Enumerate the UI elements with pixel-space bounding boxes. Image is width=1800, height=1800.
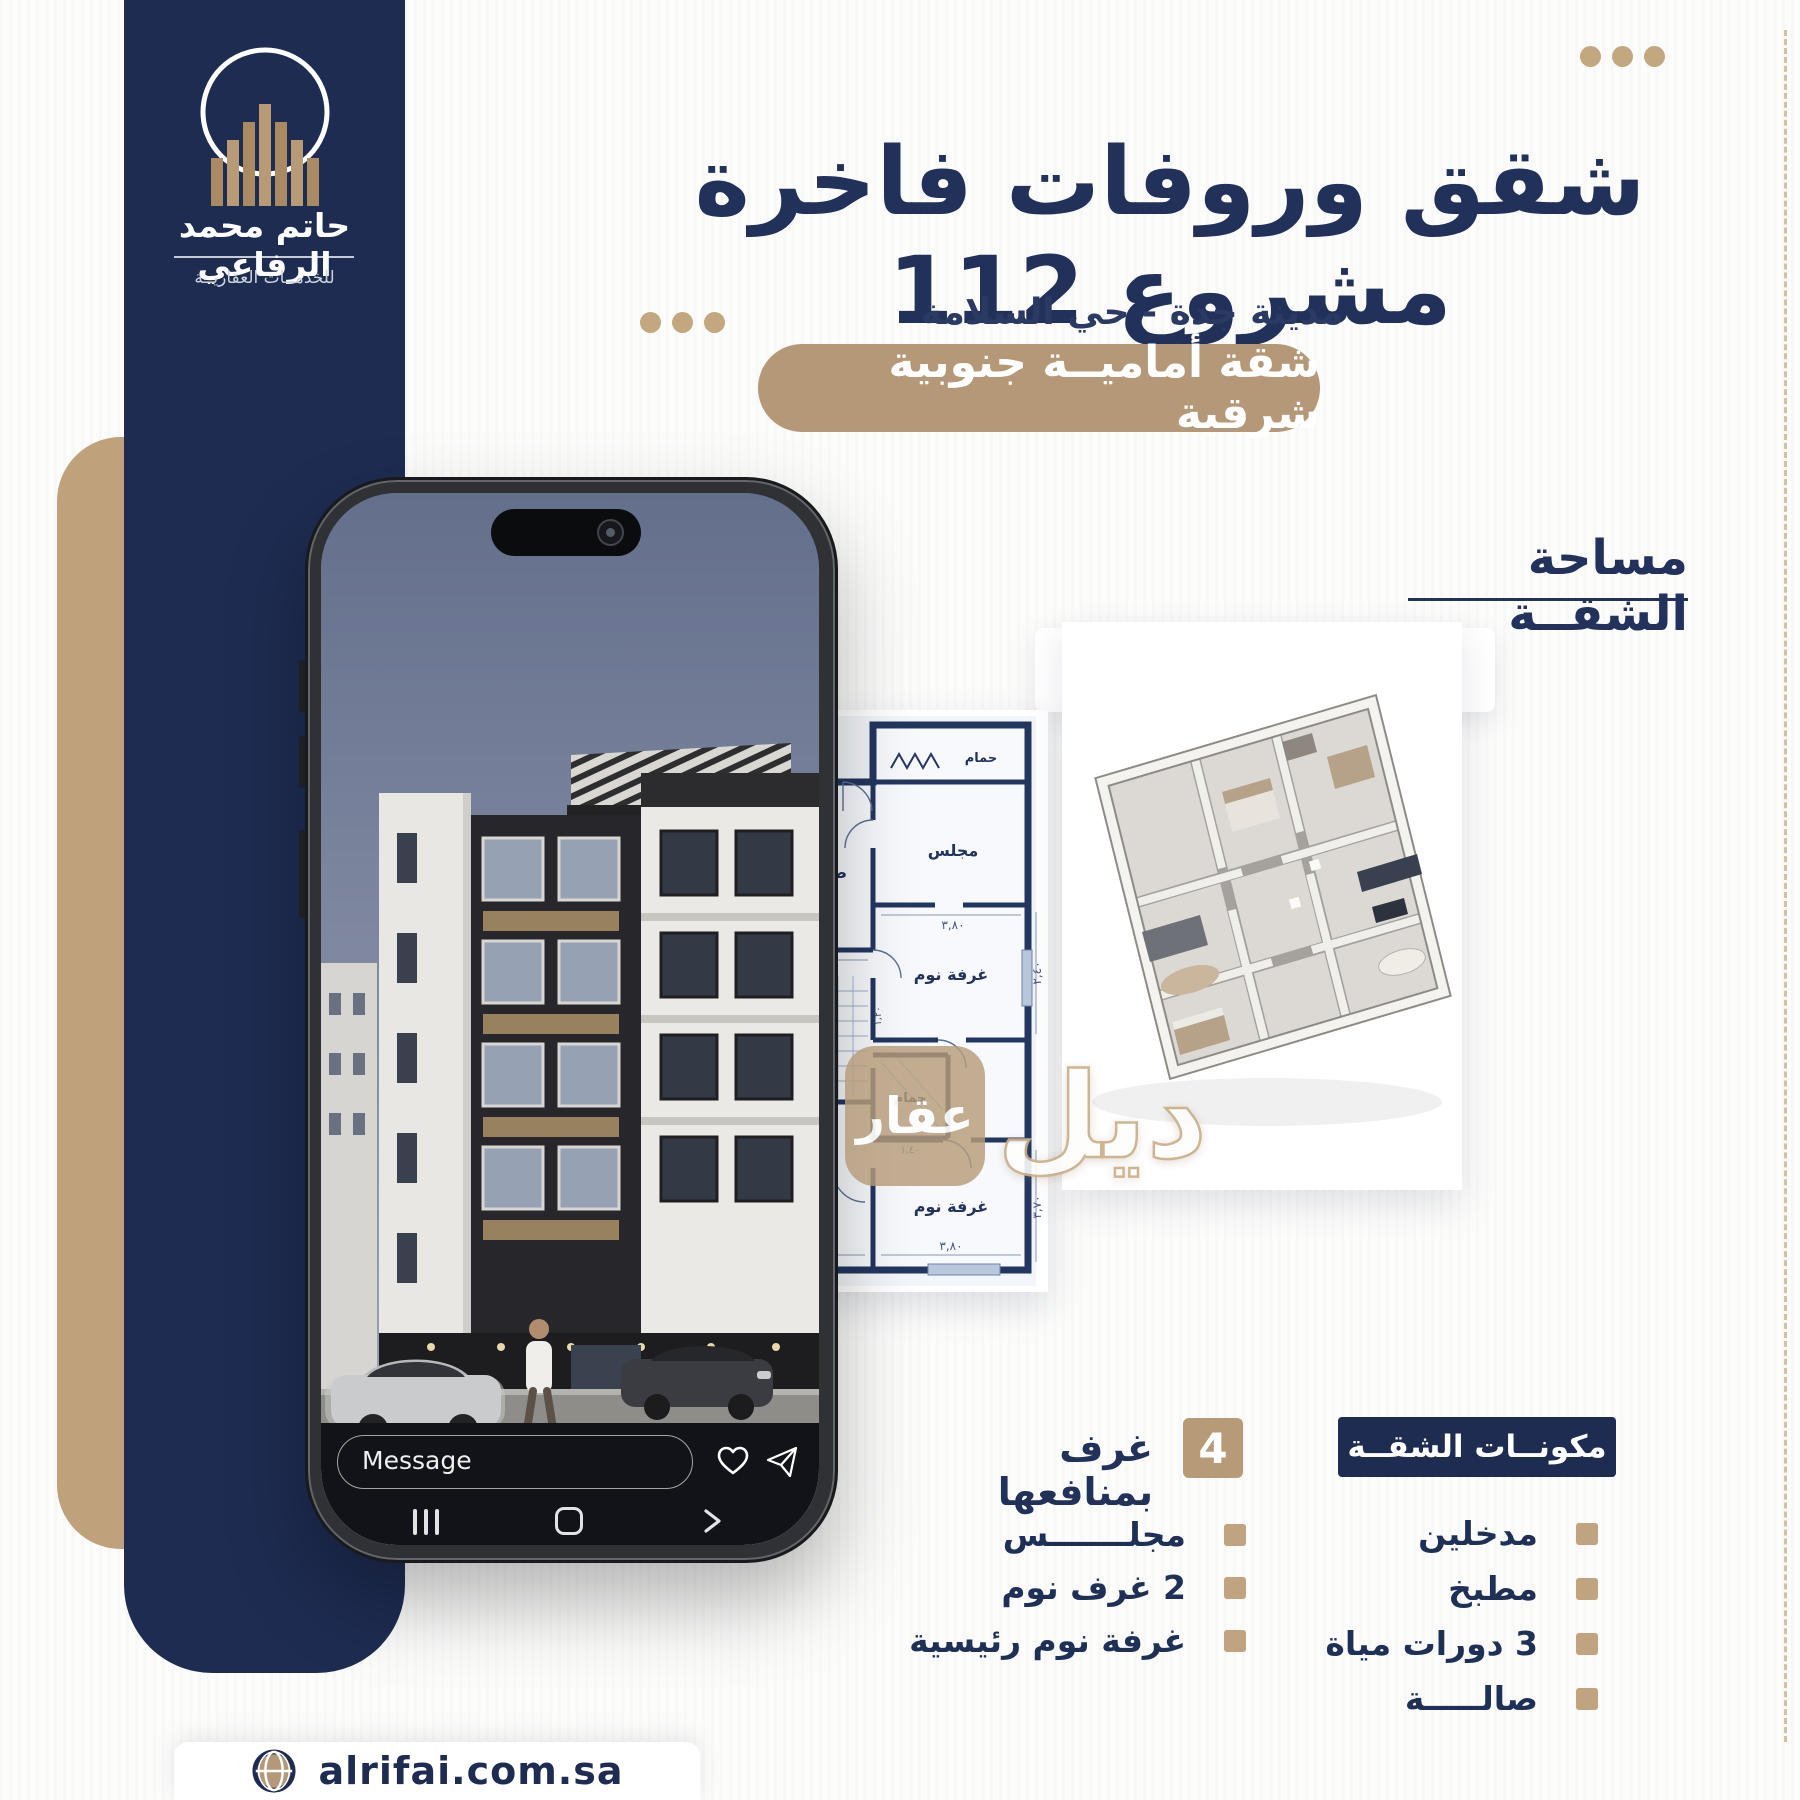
divider (174, 256, 354, 258)
room-label-bath-top: حمام (965, 751, 998, 766)
room-label-majlis: مجلس (928, 841, 979, 860)
rooms-list: مجلـــــــس 2 غرف نوم غرفة نوم رئيسية (920, 1508, 1246, 1667)
front-camera-icon (597, 519, 624, 546)
watermark: عقار ديل (845, 1046, 1207, 1186)
bullet-icon (1224, 1630, 1246, 1652)
phone-camera-island (491, 509, 641, 556)
components-list: مدخلين مطبخ 3 دورات مياة صالـــــة (1330, 1506, 1598, 1726)
brand-logo-icon (180, 30, 350, 215)
area-underline (1408, 598, 1688, 601)
apartment-orientation-banner: شقة أماميــة جنوبية شرقية (758, 344, 1320, 432)
list-item: 2 غرف نوم (920, 1561, 1246, 1614)
page-subtitle: مدينة جدة - حي السلامة (832, 292, 1432, 333)
dot-decoration (1612, 46, 1633, 67)
dim-bed-mid: ٢,٤٠ (1030, 961, 1044, 984)
bullet-icon (1224, 1524, 1246, 1546)
building-render-image (321, 493, 819, 1545)
share-send-icon[interactable] (765, 1445, 799, 1479)
globe-icon (251, 1748, 297, 1794)
list-item-label: مدخلين (1418, 1514, 1538, 1553)
room-label-bed-right: غرفة نوم (914, 1197, 988, 1216)
list-item: مطبخ (1330, 1561, 1598, 1616)
phone-screen: Message (321, 493, 819, 1545)
components-title: مكونــات الشقــة (1338, 1417, 1616, 1477)
room-label-bed-mid: غرفة نوم (914, 965, 988, 984)
brand-tagline: للخدمــات العقاريــة (124, 268, 405, 288)
list-item-label: غرفة نوم رئيسية (909, 1621, 1186, 1660)
dim-hall-w: ١,٢٠ (873, 1006, 884, 1025)
rooms-count-badge: 4 (1183, 1418, 1243, 1478)
bullet-icon (1576, 1633, 1598, 1655)
website-link[interactable]: alrifai.com.sa (319, 1749, 624, 1793)
list-item: 3 دورات مياة (1330, 1616, 1598, 1671)
footer-card: alrifai.com.sa (174, 1742, 700, 1800)
watermark-word: ديل (997, 1047, 1207, 1185)
list-item-label: مطبخ (1448, 1569, 1538, 1608)
dim-bed-right-w: ٣,٨٠ (939, 1239, 962, 1253)
bullet-icon (1576, 1688, 1598, 1710)
list-item-label: 3 دورات مياة (1325, 1624, 1538, 1663)
bullet-icon (1576, 1578, 1598, 1600)
dim-majlis: ٣,٨٠ (941, 918, 964, 932)
poster: حاتم محمد الرفاعي للخدمــات العقاريــة ش… (0, 0, 1800, 1800)
dim-bed-right-h: ٣,٧٠ (1030, 1195, 1044, 1218)
list-item-label: صالـــــة (1405, 1679, 1538, 1718)
phone-ui-panel: Message (321, 1423, 819, 1545)
bullet-icon (1224, 1577, 1246, 1599)
like-heart-icon[interactable] (715, 1443, 751, 1479)
list-item: مدخلين (1330, 1506, 1598, 1561)
dot-decoration (1580, 46, 1601, 67)
watermark-badge: عقار (845, 1046, 985, 1186)
nav-home-button[interactable] (555, 1507, 583, 1535)
rooms-count-label: غرف بمنافعها (943, 1426, 1153, 1514)
bullet-icon (1576, 1523, 1598, 1545)
nav-recents-button[interactable] (413, 1509, 439, 1535)
list-item-label: 2 غرف نوم (1001, 1568, 1186, 1607)
list-item-label: مجلـــــــس (1003, 1515, 1186, 1554)
list-item: غرفة نوم رئيسية (920, 1614, 1246, 1667)
message-input[interactable]: Message (337, 1435, 693, 1489)
list-item: صالـــــة (1330, 1671, 1598, 1726)
list-item: مجلـــــــس (920, 1508, 1246, 1561)
nav-back-icon[interactable] (697, 1507, 725, 1535)
dot-decoration (1644, 46, 1665, 67)
dashed-border-right (1784, 30, 1787, 1742)
